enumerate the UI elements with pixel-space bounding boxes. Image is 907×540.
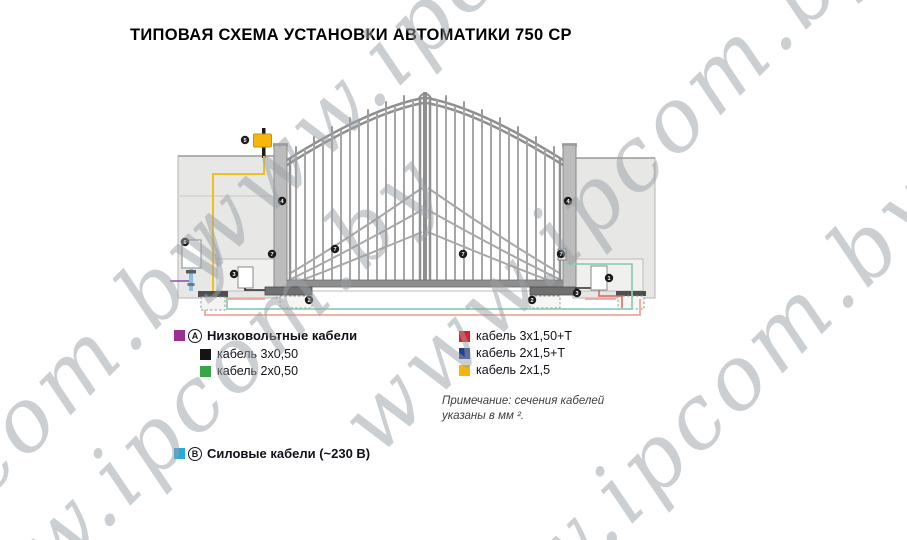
legend-item-label: кабель 3х1,50+Т: [476, 329, 572, 343]
left-gate-post: [274, 145, 287, 291]
legend-power-header: B Силовые кабели (~230 В): [174, 446, 370, 461]
marker-number: 7: [270, 252, 273, 258]
conduit-fitting: [186, 270, 196, 274]
foundation-left-cap: [198, 291, 228, 297]
marker-number: 6: [183, 240, 186, 246]
legend-swatch-yellow: [459, 365, 470, 376]
photocell-left: [238, 267, 253, 288]
marker-number: 7: [559, 252, 562, 258]
gate-bottom-rail: [287, 280, 563, 287]
circled-letter-a: A: [188, 329, 202, 343]
marker-number: 2: [307, 298, 310, 304]
legend-item: кабель 3х1,50+Т: [459, 329, 572, 343]
page: www.ipcom.by www.ipcom.by www.ipcom.by w…: [0, 0, 907, 540]
legend-low-voltage-label: Низковольтные кабели: [207, 328, 357, 343]
page-title: ТИПОВАЯ СХЕМА УСТАНОВКИ АВТОМАТИКИ 750 C…: [130, 26, 572, 45]
installation-diagram: 5647732747123: [170, 88, 660, 325]
gate-right-leaf: [427, 96, 563, 285]
marker-number: 3: [575, 291, 578, 297]
legend-item-label: кабель 3х0,50: [217, 347, 298, 361]
foundation-left: [201, 297, 225, 310]
flashing-lamp: [254, 134, 272, 147]
marker-number: 7: [333, 247, 336, 253]
wire-pink-long: [205, 299, 640, 315]
circled-letter-b: B: [188, 447, 202, 461]
legend-item: кабель 2х1,5+Т: [459, 346, 565, 360]
conduit-fitting: [188, 283, 195, 286]
legend-swatch-black: [200, 349, 211, 360]
legend-swatch-blue: [459, 348, 470, 359]
note: Примечание: сечения кабелей указаны в мм…: [442, 394, 672, 424]
marker-number: 7: [461, 252, 464, 258]
legend-low-voltage-header: A Низковольтные кабели: [174, 328, 357, 343]
note-line2: указаны в мм ².: [442, 409, 672, 424]
marker-number: 3: [232, 272, 235, 278]
legend-swatch-purple: [174, 330, 185, 341]
marker-number: 5: [243, 138, 246, 144]
marker-number: 1: [607, 276, 610, 282]
legend-item: кабель 2х0,50: [200, 364, 298, 378]
legend-swatch-cyan: [174, 448, 185, 459]
operator-left: [265, 287, 312, 295]
legend-item: кабель 2х1,5: [459, 363, 550, 377]
legend-item-label: кабель 2х1,5: [476, 363, 550, 377]
right-gate-post: [563, 145, 576, 291]
legend-swatch-green: [200, 366, 211, 377]
marker-number: 2: [530, 298, 533, 304]
legend-power-label: Силовые кабели (~230 В): [207, 446, 370, 461]
gate-left-leaf: [287, 96, 423, 285]
legend-item: кабель 3х0,50: [200, 347, 298, 361]
legend-item-label: кабель 2х1,5+Т: [476, 346, 565, 360]
note-line1: Примечание: сечения кабелей: [442, 394, 672, 409]
operator-right: [530, 287, 575, 295]
legend-swatch-red: [459, 331, 470, 342]
legend-item-label: кабель 2х0,50: [217, 364, 298, 378]
control-unit-right: [591, 266, 607, 290]
arcs-left: [289, 188, 422, 285]
arcs-right: [428, 188, 561, 285]
